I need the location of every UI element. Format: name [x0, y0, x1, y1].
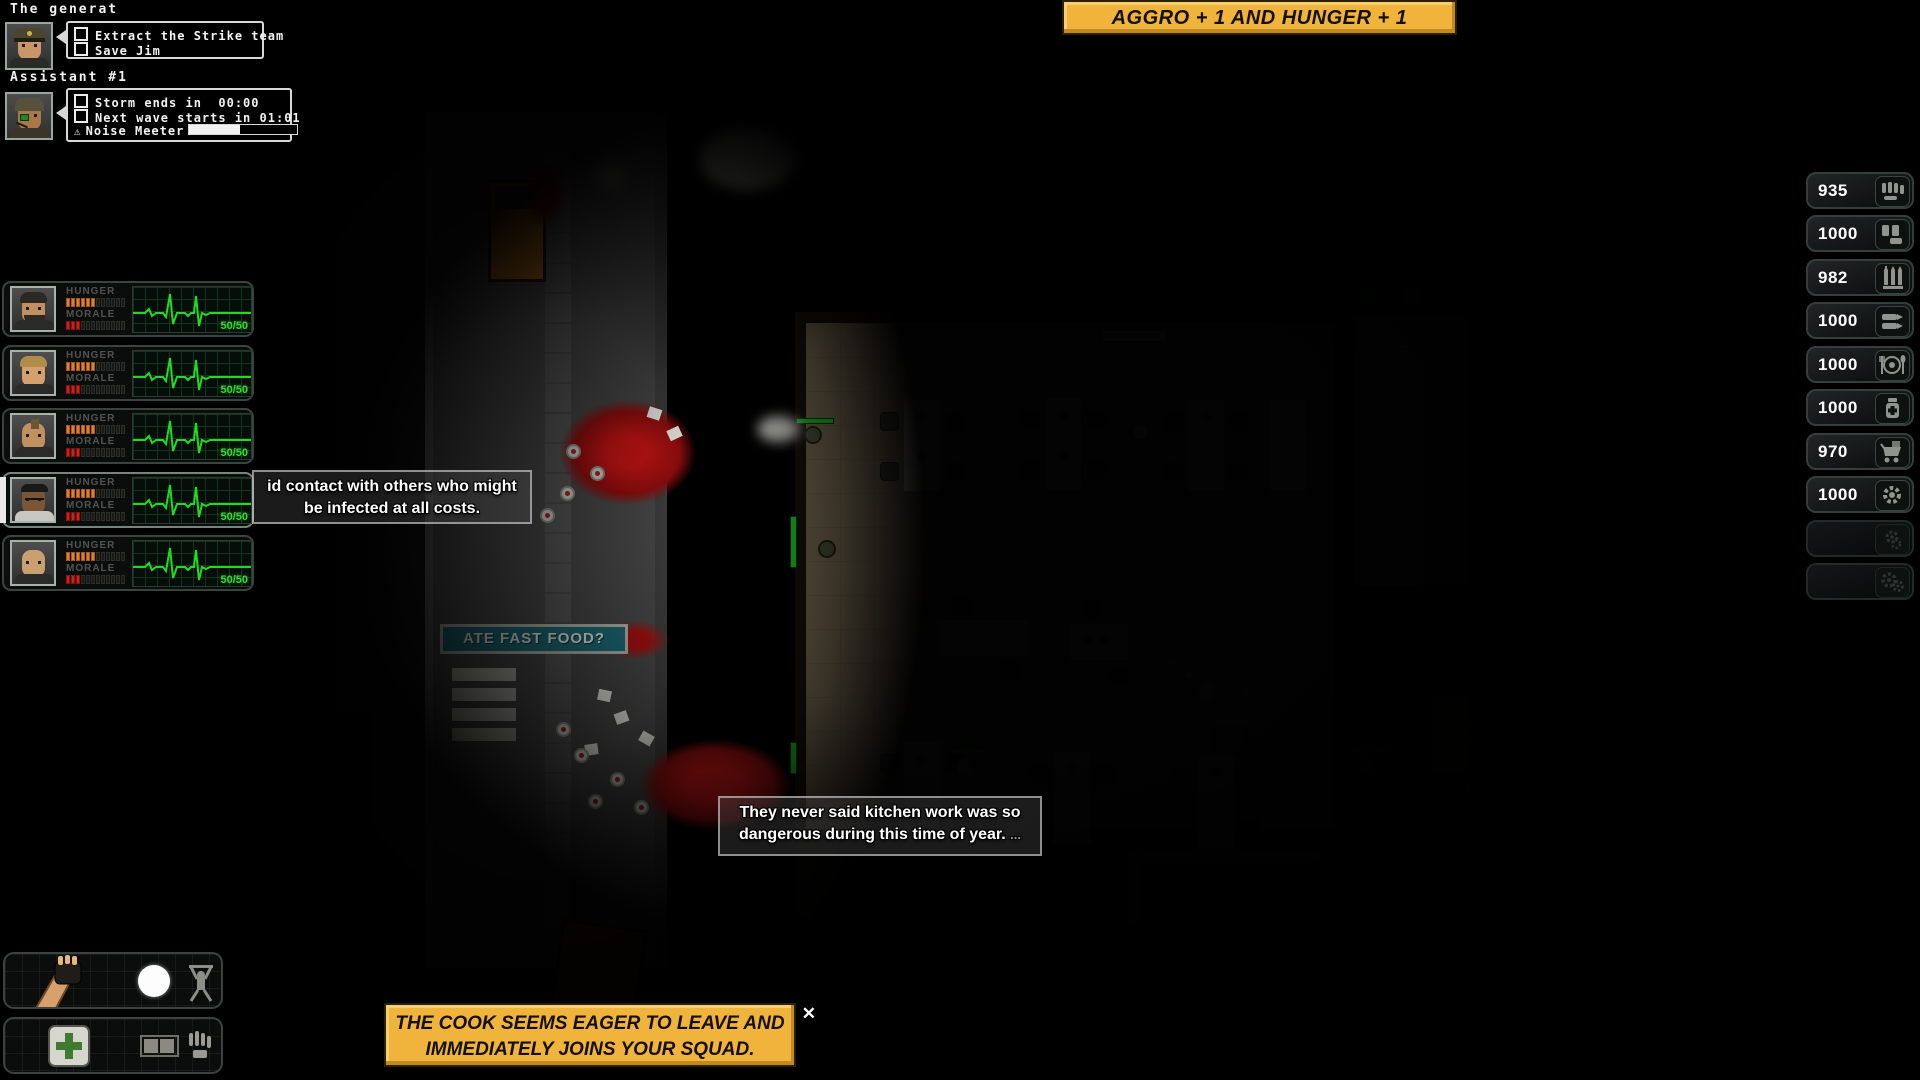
fastfood-sign: ATE FAST FOOD? [440, 624, 628, 654]
ammo-icon[interactable] [187, 1030, 217, 1064]
table [1268, 398, 1308, 493]
resource-slot-rifle-ammo[interactable]: 982 [1806, 259, 1914, 296]
task-item: Extract the Strike team [74, 27, 256, 42]
flashbang-icon[interactable] [138, 965, 170, 997]
timer-value: 01:01 [260, 111, 301, 125]
generator[interactable] [1390, 836, 1482, 892]
resource-slot-shotgun-shells[interactable]: 1000 [1806, 215, 1914, 252]
squad-member-portrait[interactable] [10, 540, 56, 586]
smoke-cloud [596, 160, 626, 190]
morale-label: MORALE [66, 437, 130, 447]
rifle-ammo-icon [1875, 263, 1910, 294]
timer-item: Next wave starts in 01:01 [74, 109, 284, 124]
magazine-icon[interactable] [140, 1032, 180, 1062]
general-task-bubble: Extract the Strike team Save Jim [66, 21, 264, 59]
ekg-monitor: 50/50 [132, 350, 252, 397]
task-checkbox [74, 109, 88, 123]
task-checkbox [74, 42, 88, 56]
speech-ellipsis: ... [1010, 827, 1021, 842]
resource-slot-pistol-ammo[interactable]: 935 [1806, 172, 1914, 209]
hp-value: 50/50 [220, 320, 248, 332]
noise-meter-fill [189, 125, 240, 134]
resource-slot-meds[interactable]: 1000 [1806, 389, 1914, 426]
morale-bar [66, 321, 130, 331]
window-marker [1102, 330, 1166, 342]
ekg-monitor: 50/50 [132, 413, 252, 460]
general-portrait [5, 22, 53, 70]
squad-member-portrait[interactable] [10, 286, 56, 332]
zombie-unit[interactable] [588, 794, 603, 809]
glasses [25, 498, 44, 505]
item-row[interactable] [3, 1017, 223, 1074]
speech-bubble: id contact with others who might be infe… [252, 470, 532, 524]
morale-label: MORALE [66, 374, 130, 384]
zombie-unit[interactable] [556, 722, 571, 737]
resource-slot-food[interactable]: 1000 [1806, 346, 1914, 383]
table [935, 618, 1030, 658]
event-banner-cook: THE COOK SEEMS EAGER TO LEAVE AND IMMEDI… [384, 1003, 796, 1067]
zombie-unit[interactable] [560, 486, 575, 501]
heavy-ammo-icon [1875, 306, 1910, 337]
unit-health-bar [1352, 748, 1390, 754]
supply-crate [1384, 291, 1398, 303]
resource-slot-heavy-ammo[interactable]: 1000 [1806, 302, 1914, 339]
ekg-monitor: 50/50 [132, 477, 252, 524]
cart-icon [1875, 437, 1910, 468]
squad-member-portrait[interactable] [10, 350, 56, 396]
curb [655, 112, 667, 968]
ekg-monitor: 50/50 [132, 540, 252, 587]
table [1068, 622, 1130, 662]
crosswalk-stripe [452, 688, 516, 701]
task-checkbox [74, 27, 88, 41]
hunger-label: HUNGER [66, 414, 130, 424]
curb [425, 112, 433, 968]
squad-member-panel-selected[interactable]: HUNGER MORALE 50/50 [2, 472, 254, 528]
hunger-bar [66, 362, 130, 372]
hp-value: 50/50 [220, 447, 248, 459]
blood-splatter [520, 160, 568, 230]
close-icon[interactable]: ✕ [802, 1001, 816, 1027]
hunger-bar [66, 489, 130, 499]
mohawk-hair [31, 419, 39, 429]
kitchen-counter [1356, 452, 1392, 566]
zombie-unit[interactable] [574, 748, 589, 763]
carry-icon[interactable] [183, 963, 219, 1003]
hunger-label: HUNGER [66, 541, 130, 551]
hunger-label: HUNGER [66, 478, 130, 488]
hp-value: 50/50 [220, 384, 248, 396]
supply-crate [1404, 289, 1420, 303]
door-health-bar [790, 516, 797, 568]
assistant-task-bubble: Storm ends in 00:00 Next wave starts in … [66, 88, 292, 142]
supply-crate [1360, 289, 1376, 303]
morale-bar [66, 575, 130, 585]
morale-label: MORALE [66, 501, 130, 511]
crosswalk-stripe [452, 668, 516, 681]
hunger-bar [66, 425, 130, 435]
pipe [1125, 852, 1397, 867]
fridge [1470, 318, 1518, 356]
gears-icon [1875, 567, 1910, 598]
noise-meter-row: ⚠Noise Meeter [74, 124, 284, 139]
power-room [1345, 640, 1531, 940]
squad-member-panel[interactable]: HUNGER MORALE 50/50 [2, 281, 254, 337]
morale-bar [66, 385, 130, 395]
hunger-bar [66, 298, 130, 308]
game-map[interactable]: ALTERNATIVE POWER HIGH VOLTAGE ATE FAST … [0, 0, 1920, 1080]
warning-icon: ⚠ [74, 125, 82, 138]
eye-lens-icon [20, 114, 29, 121]
power-sign: ALTERNATIVE POWER HIGH VOLTAGE [1428, 692, 1530, 774]
assistant-portrait [5, 92, 53, 140]
zombie-unit[interactable] [540, 508, 555, 523]
general-title: The generat [10, 2, 118, 17]
noise-meter [188, 124, 298, 135]
ekg-monitor: 50/50 [132, 286, 252, 333]
lightning-bolt-icon [1495, 714, 1511, 730]
plate [1134, 426, 1147, 439]
task-checkbox [74, 94, 88, 108]
hunger-bar [66, 552, 130, 562]
soldier-unit[interactable] [1358, 756, 1376, 774]
hunger-label: HUNGER [66, 287, 130, 297]
hunger-label: HUNGER [66, 351, 130, 361]
tools-icon [1875, 524, 1910, 555]
fist-icon[interactable] [25, 954, 105, 1009]
pipe [1125, 852, 1140, 934]
resource-slot-parts[interactable]: 1000 [1806, 476, 1914, 513]
morale-bar [66, 512, 130, 522]
squad-member-portrait[interactable] [10, 477, 56, 523]
morale-label: MORALE [66, 310, 130, 320]
resource-slot-empty-1[interactable] [1806, 520, 1914, 557]
pistol-ammo-icon [1875, 176, 1910, 207]
headset-icon [15, 98, 44, 111]
cook-apron [968, 762, 975, 769]
morale-label: MORALE [66, 564, 130, 574]
gear-icon [1875, 480, 1910, 511]
timer-value: 00:00 [218, 96, 259, 110]
hp-value: 50/50 [220, 511, 248, 523]
morale-bar [66, 448, 130, 458]
debris-paper [597, 689, 612, 702]
resource-slot-materials[interactable]: 970 [1806, 433, 1914, 470]
door-health-bar [790, 742, 797, 774]
smoke-cloud [700, 128, 795, 190]
medkit-button[interactable] [48, 1025, 90, 1067]
food-icon [1875, 350, 1910, 381]
meds-icon [1875, 393, 1910, 424]
zombie-unit[interactable] [634, 800, 649, 815]
unit-health-bar [948, 748, 986, 754]
soldier-unit[interactable] [818, 540, 836, 558]
squad-member-panel[interactable]: HUNGER MORALE 50/50 [2, 408, 254, 464]
zombie-unit[interactable] [590, 466, 605, 481]
task-item: Save Jim [74, 42, 256, 57]
speech-bubble: They never said kitchen work was so dang… [718, 796, 1042, 856]
soldier-unit[interactable] [804, 426, 822, 444]
squad-member-panel[interactable]: HUNGER MORALE 50/50 [2, 535, 254, 591]
dropped-crate[interactable] [1214, 726, 1248, 754]
cook-unit[interactable] [1198, 682, 1216, 700]
event-banner: AGGRO + 1 AND HUNGER + 1 [1062, 0, 1457, 35]
sidewalk [545, 112, 571, 968]
crosswalk-stripe [452, 728, 516, 741]
blood-splatter [850, 120, 980, 205]
timer-item: Storm ends in 00:00 [74, 94, 284, 109]
assistant-title: Assistant #1 [10, 70, 128, 85]
squad-member-panel[interactable]: HUNGER MORALE 50/50 [2, 345, 254, 401]
zombie-unit[interactable] [566, 444, 581, 459]
squad-member-portrait[interactable] [10, 413, 56, 459]
crosswalk-stripe [452, 708, 516, 721]
muzzle-smoke [758, 416, 800, 442]
unit-health-bar [796, 418, 834, 424]
resource-slot-empty-2[interactable] [1806, 563, 1914, 600]
shotgun-shells-icon [1875, 219, 1910, 250]
hp-value: 50/50 [220, 574, 248, 586]
weapon-row[interactable] [3, 952, 223, 1009]
zombie-unit[interactable] [610, 772, 625, 787]
